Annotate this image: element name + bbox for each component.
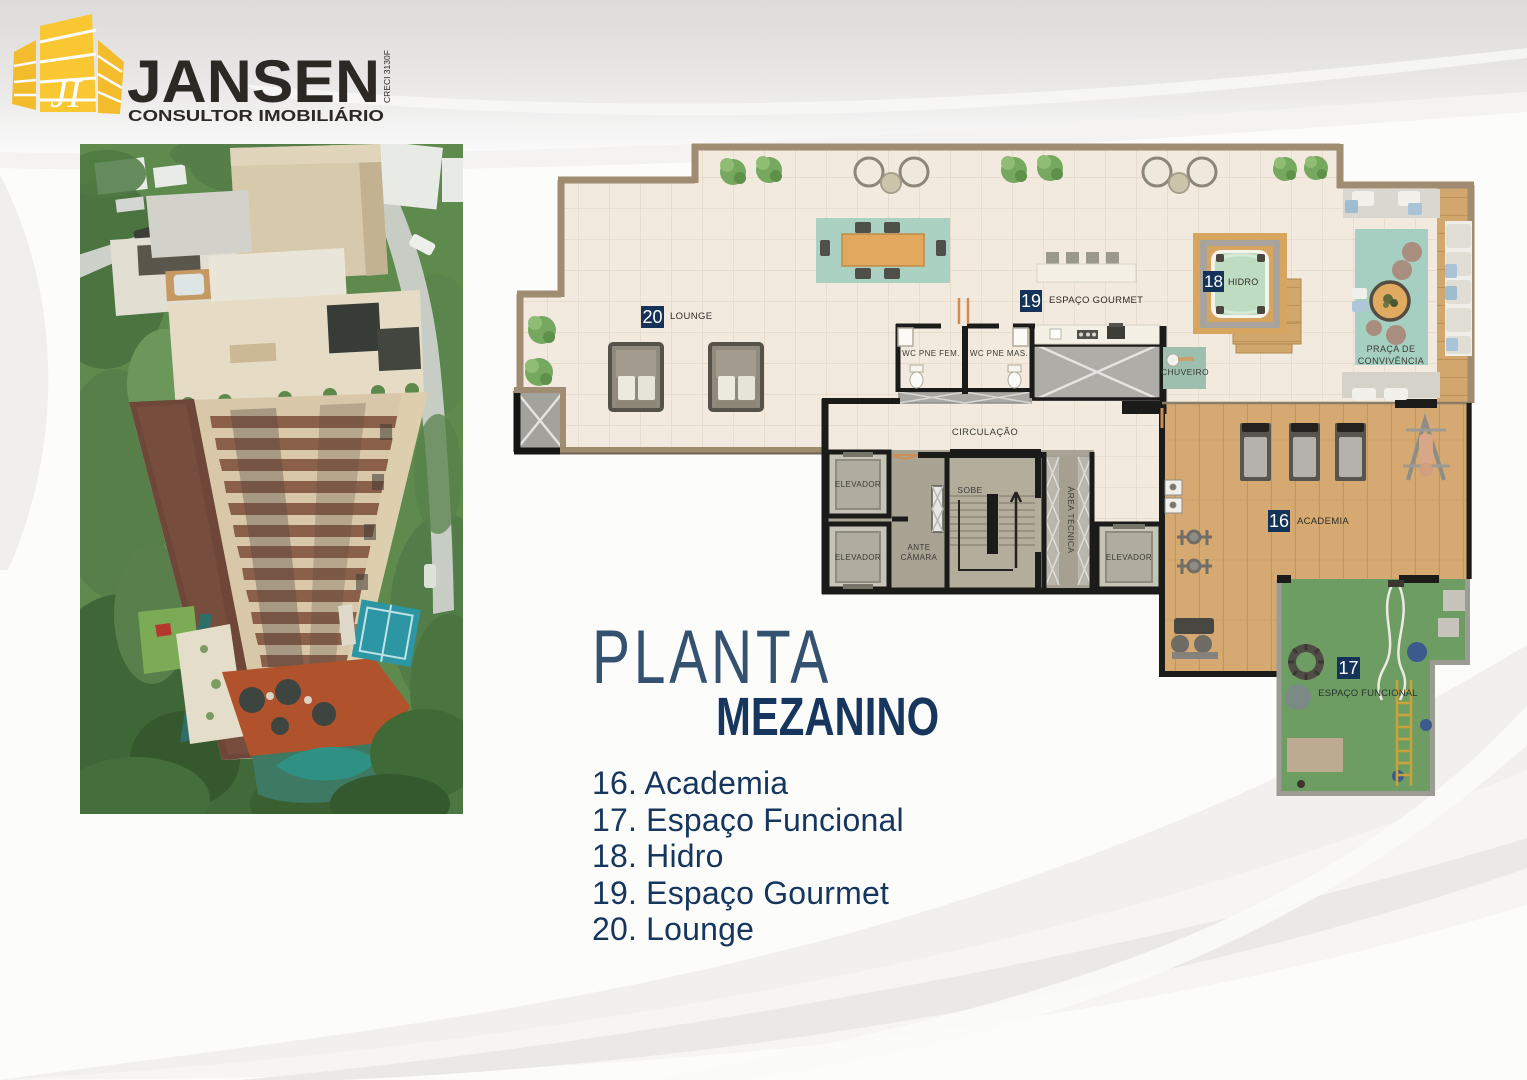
svg-text:ELEVADOR: ELEVADOR [1106,553,1152,562]
svg-text:LOUNGE: LOUNGE [670,311,713,322]
svg-text:WC PNE FEM.: WC PNE FEM. [902,349,960,358]
svg-text:ELEVADOR: ELEVADOR [835,553,881,562]
svg-text:20: 20 [642,307,662,327]
svg-text:CONVIVÊNCIA: CONVIVÊNCIA [1358,356,1424,366]
svg-text:18: 18 [1204,272,1223,291]
svg-text:ELEVADOR: ELEVADOR [835,480,881,489]
svg-text:ANTE: ANTE [908,543,931,552]
svg-text:CÂMARA: CÂMARA [901,553,938,562]
svg-text:17: 17 [1338,658,1358,678]
svg-text:PRAÇA DE: PRAÇA DE [1367,344,1416,354]
svg-text:CHUVEIRO: CHUVEIRO [1161,367,1209,377]
svg-text:ESPAÇO FUNCIONAL: ESPAÇO FUNCIONAL [1318,688,1418,699]
svg-text:ESPAÇO GOURMET: ESPAÇO GOURMET [1049,295,1143,306]
svg-text:19: 19 [1021,291,1041,311]
svg-text:16: 16 [1269,511,1289,531]
svg-text:WC PNE MAS.: WC PNE MAS. [970,349,1028,358]
svg-text:CIRCULAÇÃO: CIRCULAÇÃO [952,427,1018,438]
svg-text:ACADEMIA: ACADEMIA [1297,516,1349,527]
svg-text:ÁREA TÉCNICA: ÁREA TÉCNICA [1066,487,1076,554]
svg-text:HIDRO: HIDRO [1228,277,1259,287]
svg-text:SOBE: SOBE [957,485,982,495]
